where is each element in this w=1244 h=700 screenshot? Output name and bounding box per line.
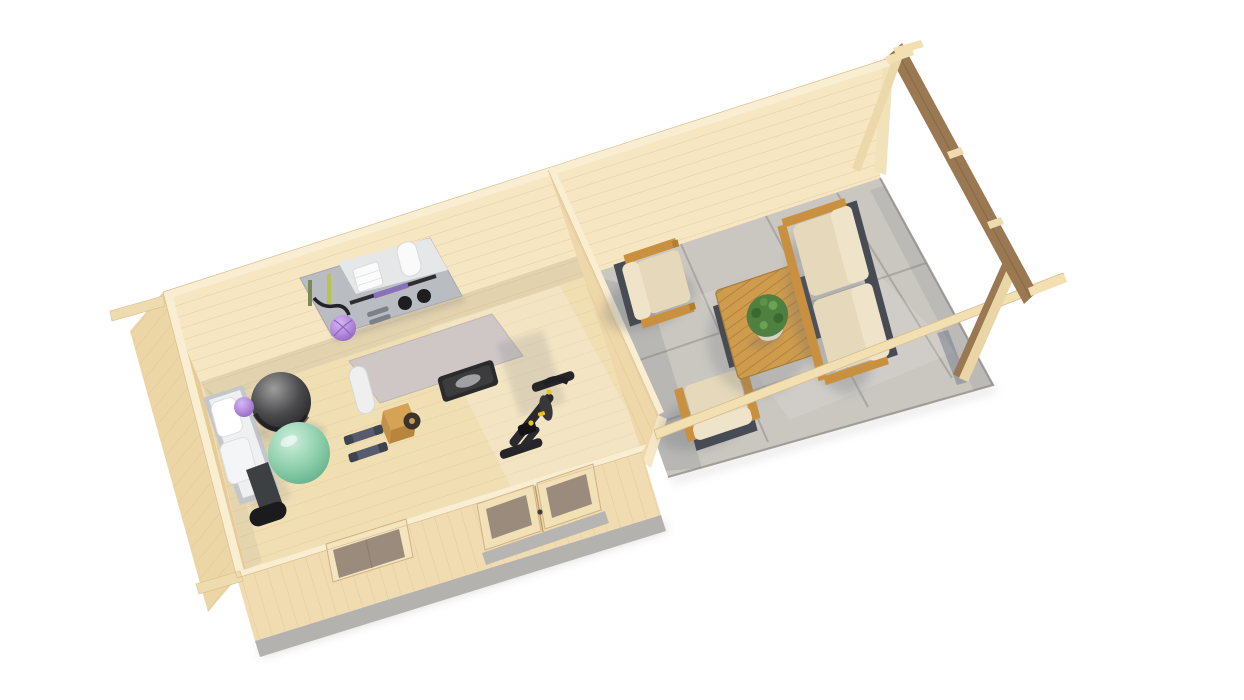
small-purple-ball: [234, 397, 254, 417]
render-canvas: [0, 0, 1244, 700]
mint-yoga-ball: [268, 422, 330, 484]
bike-accent: [546, 389, 551, 394]
door-handle: [537, 509, 542, 514]
kettlebell: [398, 296, 412, 310]
kettlebell: [417, 289, 431, 303]
cabin-3d-render: [0, 0, 1244, 700]
purple-massage-ball: [330, 315, 356, 341]
